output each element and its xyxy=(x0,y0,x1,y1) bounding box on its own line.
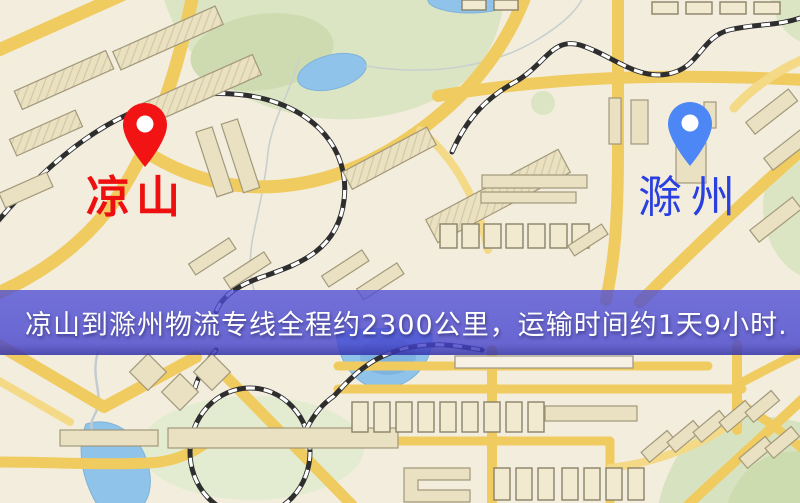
route-info-text: 凉山到滁州物流专线全程约2300公里，运输时间约1天9小时. xyxy=(0,303,788,342)
route-info-banner: 凉山到滁州物流专线全程约2300公里，运输时间约1天9小时. xyxy=(0,290,800,355)
map-background xyxy=(0,0,800,503)
map-viewport: 凉山 滁州 凉山到滁州物流专线全程约2300公里，运输时间约1天9小时. xyxy=(0,0,800,503)
origin-pin-icon xyxy=(122,102,168,168)
origin-marker[interactable] xyxy=(122,102,168,168)
destination-marker[interactable] xyxy=(667,101,713,167)
destination-pin-icon xyxy=(667,101,713,167)
origin-city-label: 凉山 xyxy=(86,176,186,220)
destination-city-label: 滁州 xyxy=(638,176,744,220)
